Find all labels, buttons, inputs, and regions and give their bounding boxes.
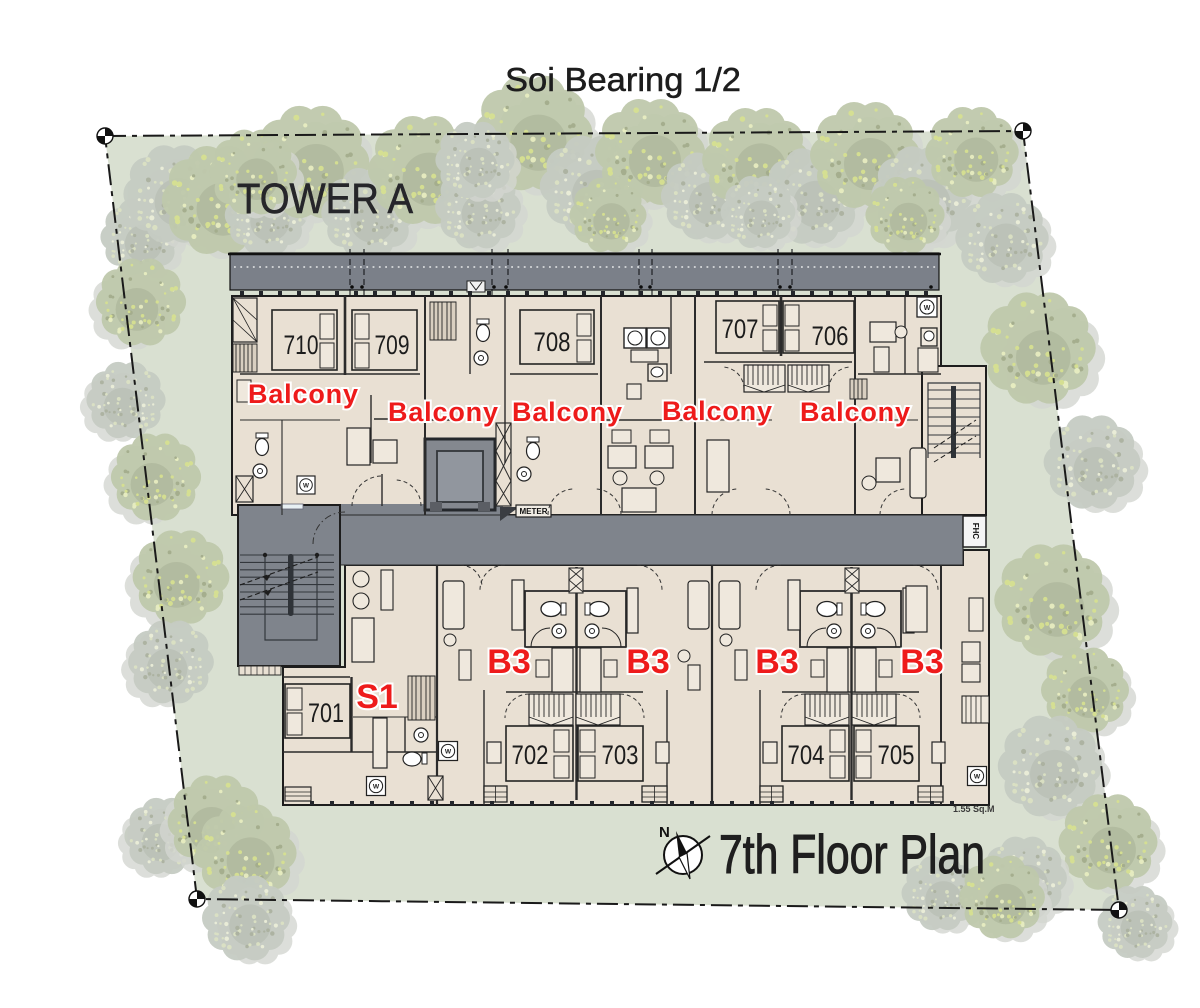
svg-text:N: N bbox=[659, 824, 670, 841]
svg-text:710: 710 bbox=[284, 330, 319, 360]
svg-text:703: 703 bbox=[602, 740, 639, 770]
svg-text:Balcony: Balcony bbox=[248, 379, 358, 409]
svg-text:1.55 Sq.M: 1.55 Sq.M bbox=[953, 804, 995, 814]
svg-text:Soi Bearing 1/2: Soi Bearing 1/2 bbox=[505, 61, 741, 98]
svg-text:704: 704 bbox=[788, 740, 825, 770]
svg-text:Balcony: Balcony bbox=[388, 397, 498, 427]
svg-text:B3: B3 bbox=[900, 643, 943, 681]
svg-text:FHC: FHC bbox=[971, 523, 980, 540]
svg-text:B3: B3 bbox=[755, 643, 798, 681]
svg-text:701: 701 bbox=[308, 698, 344, 728]
svg-text:709: 709 bbox=[375, 330, 410, 360]
svg-text:Balcony: Balcony bbox=[662, 396, 772, 426]
svg-text:B3: B3 bbox=[487, 643, 530, 681]
svg-text:Balcony: Balcony bbox=[800, 397, 910, 427]
svg-text:Balcony: Balcony bbox=[512, 397, 622, 427]
svg-text:705: 705 bbox=[878, 740, 915, 770]
svg-text:7th Floor Plan: 7th Floor Plan bbox=[719, 823, 985, 885]
svg-text:706: 706 bbox=[812, 321, 849, 351]
svg-text:B3: B3 bbox=[626, 643, 669, 681]
svg-text:707: 707 bbox=[722, 314, 759, 344]
svg-text:702: 702 bbox=[512, 740, 549, 770]
svg-text:METER: METER bbox=[520, 507, 548, 516]
svg-text:TOWER A: TOWER A bbox=[237, 175, 413, 223]
svg-text:S1: S1 bbox=[356, 678, 398, 716]
svg-text:708: 708 bbox=[534, 327, 571, 357]
